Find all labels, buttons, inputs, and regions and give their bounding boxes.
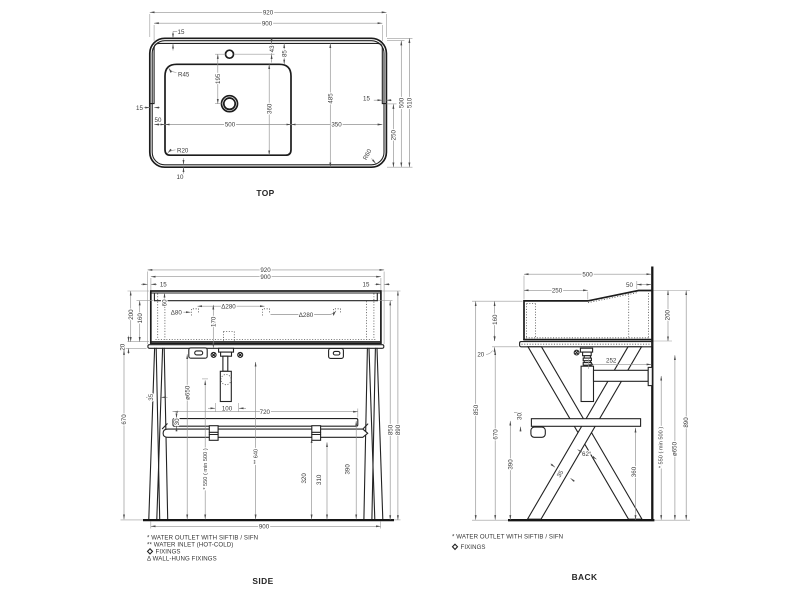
svg-text:FIXINGS: FIXINGS: [461, 544, 486, 551]
svg-text:10: 10: [177, 174, 184, 181]
svg-text:500: 500: [582, 271, 593, 278]
svg-text:ø650: ø650: [672, 441, 679, 456]
svg-text:195: 195: [215, 73, 222, 84]
svg-text:160: 160: [137, 313, 144, 324]
svg-text:720: 720: [260, 409, 271, 416]
svg-text:920: 920: [263, 10, 274, 17]
svg-text:250: 250: [552, 288, 563, 295]
svg-text:* WATER OUTLET WITH SIFTIB /: * WATER OUTLET WITH SIFTIB / SIFN: [147, 535, 258, 542]
svg-text:15: 15: [363, 96, 370, 103]
svg-text:35: 35: [148, 393, 155, 400]
svg-text:15: 15: [160, 282, 167, 289]
svg-text:SIDE: SIDE: [252, 576, 273, 586]
svg-text:900: 900: [260, 274, 271, 281]
svg-text:160: 160: [492, 314, 499, 325]
svg-text:320: 320: [301, 473, 308, 484]
svg-text:30: 30: [517, 413, 524, 420]
svg-text:200: 200: [128, 309, 135, 320]
svg-text:30: 30: [174, 418, 181, 425]
svg-text:20: 20: [120, 343, 127, 350]
svg-text:850: 850: [473, 404, 480, 415]
svg-text:500: 500: [225, 122, 236, 129]
svg-text:* WATER OUTLET WITH SIFTIB /: * WATER OUTLET WITH SIFTIB / SIFN: [452, 534, 563, 541]
svg-text:390: 390: [508, 459, 515, 470]
svg-text:850: 850: [387, 424, 394, 435]
svg-text:15: 15: [178, 29, 185, 36]
svg-text:** 640: ** 640: [254, 449, 260, 464]
svg-text:R45: R45: [178, 71, 190, 78]
svg-text:252: 252: [606, 358, 617, 365]
svg-text:360: 360: [266, 103, 273, 114]
svg-text:15: 15: [136, 105, 143, 112]
svg-text:50: 50: [626, 282, 633, 289]
svg-text:250: 250: [391, 129, 398, 140]
svg-text:360: 360: [631, 466, 638, 477]
svg-text:900: 900: [262, 20, 273, 27]
svg-text:390: 390: [345, 464, 352, 475]
svg-text:485: 485: [328, 93, 335, 104]
svg-text:BACK: BACK: [572, 572, 598, 582]
svg-text:Δ80: Δ80: [171, 310, 183, 317]
svg-text:310: 310: [316, 474, 323, 485]
svg-text:* 550 ( min 500 ): * 550 ( min 500 ): [203, 448, 209, 489]
svg-text:R20: R20: [177, 147, 189, 154]
svg-text:Δ280: Δ280: [299, 312, 314, 319]
svg-text:50: 50: [155, 117, 162, 124]
svg-text:350: 350: [331, 122, 342, 129]
svg-text:Δ280: Δ280: [221, 303, 236, 310]
svg-text:900: 900: [259, 524, 270, 531]
svg-text:890: 890: [683, 417, 690, 428]
svg-text:890: 890: [395, 424, 402, 435]
svg-text:170: 170: [211, 316, 218, 327]
svg-text:670: 670: [121, 414, 128, 425]
svg-text:510: 510: [407, 97, 414, 108]
svg-text:20: 20: [477, 351, 484, 358]
svg-text:43: 43: [269, 45, 276, 52]
svg-text:200: 200: [664, 309, 671, 320]
svg-text:TOP: TOP: [256, 188, 274, 198]
svg-text:* 550 ( min 500 ): * 550 ( min 500 ): [659, 427, 665, 468]
svg-text:500: 500: [399, 97, 406, 108]
svg-text:670: 670: [492, 429, 499, 440]
svg-text:85: 85: [281, 50, 288, 57]
svg-text:62°: 62°: [582, 451, 592, 458]
svg-text:FIXINGS: FIXINGS: [156, 548, 181, 555]
svg-text:60: 60: [162, 299, 169, 306]
svg-text:15: 15: [363, 282, 370, 289]
svg-text:ø650: ø650: [184, 385, 191, 400]
svg-text:Δ WALL-HUNG FIXINGS: Δ WALL-HUNG FIXINGS: [147, 555, 217, 562]
